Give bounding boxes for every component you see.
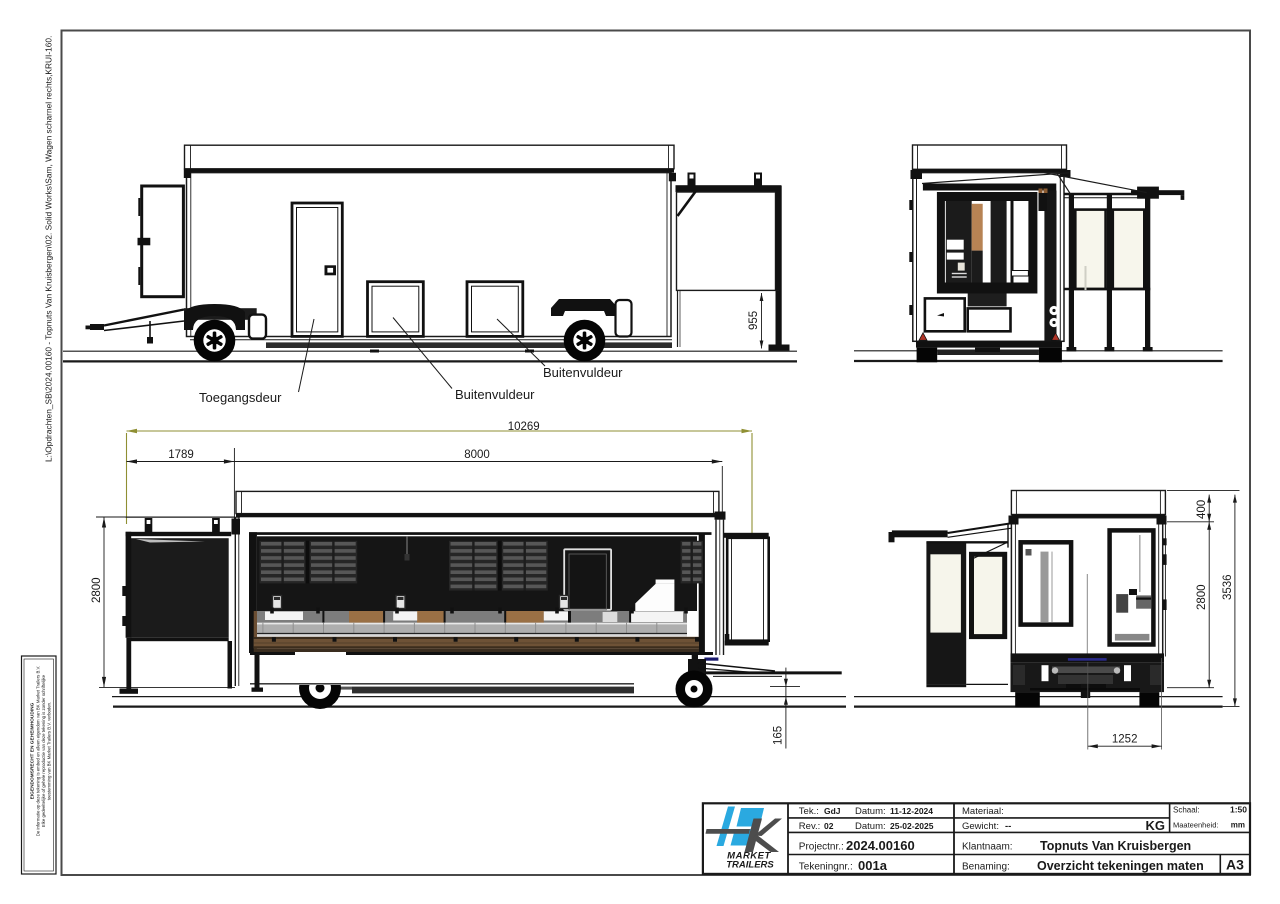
svg-text:Datum:: Datum:: [855, 806, 886, 817]
svg-text:955: 955: [748, 311, 760, 330]
svg-text:8000: 8000: [464, 449, 490, 461]
svg-text:Tekeningnr.:: Tekeningnr.:: [799, 862, 853, 873]
svg-text:400: 400: [1196, 500, 1208, 519]
svg-text:Benaming:: Benaming:: [962, 862, 1010, 873]
svg-text:TRAILERS: TRAILERS: [726, 860, 774, 871]
svg-text:Topnuts Van Kruisbergen: Topnuts Van Kruisbergen: [1040, 839, 1191, 853]
svg-text:--: --: [1005, 821, 1011, 832]
svg-text:toestemming van BK Market Trai: toestemming van BK Market Trailers B.V. …: [47, 702, 52, 800]
svg-text:Buitenvuldeur: Buitenvuldeur: [455, 387, 535, 402]
svg-text:11-12-2024: 11-12-2024: [890, 806, 933, 816]
svg-text:L:\Opdrachten_SB\2024.00160 -: L:\Opdrachten_SB\2024.00160 - Topnuts Va…: [44, 36, 54, 462]
svg-text:Klantnaam:: Klantnaam:: [962, 842, 1013, 853]
svg-text:Overzicht tekeningen maten: Overzicht tekeningen maten: [1037, 859, 1204, 873]
svg-text:KG: KG: [1146, 818, 1166, 833]
svg-text:02: 02: [824, 821, 834, 831]
svg-text:001a: 001a: [858, 858, 888, 873]
svg-text:3536: 3536: [1222, 574, 1234, 600]
svg-text:GdJ: GdJ: [824, 806, 841, 816]
svg-text:A3: A3: [1226, 857, 1244, 873]
svg-text:De informatie op deze tekening: De informatie op deze tekening is embed …: [36, 666, 41, 836]
svg-text:165: 165: [773, 726, 785, 745]
svg-text:Rev.:: Rev.:: [799, 821, 820, 832]
svg-text:Maateenheid:: Maateenheid:: [1173, 821, 1218, 830]
svg-text:mm: mm: [1231, 821, 1245, 830]
svg-text:Toegangsdeur: Toegangsdeur: [199, 390, 282, 405]
svg-text:2800: 2800: [1196, 584, 1208, 610]
svg-text:Tek.:: Tek.:: [799, 806, 819, 817]
svg-text:1252: 1252: [1112, 734, 1138, 746]
svg-text:Elke gedeeltelijke of gehele r: Elke gedeeltelijke of gehele reproductie…: [41, 674, 46, 827]
svg-text:2024.00160: 2024.00160: [846, 838, 915, 853]
svg-text:1789: 1789: [168, 449, 194, 461]
svg-text:25-02-2025: 25-02-2025: [890, 821, 934, 831]
svg-text:Schaal:: Schaal:: [1173, 806, 1200, 815]
svg-text:1:50: 1:50: [1230, 805, 1247, 815]
svg-text:Materiaal:: Materiaal:: [962, 806, 1004, 817]
svg-text:Buitenvuldeur: Buitenvuldeur: [543, 365, 623, 380]
svg-text:Datum:: Datum:: [855, 821, 886, 832]
svg-text:Gewicht:: Gewicht:: [962, 821, 999, 832]
svg-text:2800: 2800: [91, 577, 103, 603]
svg-text:Projectnr.:: Projectnr.:: [799, 842, 844, 853]
svg-text:10269: 10269: [508, 421, 540, 433]
